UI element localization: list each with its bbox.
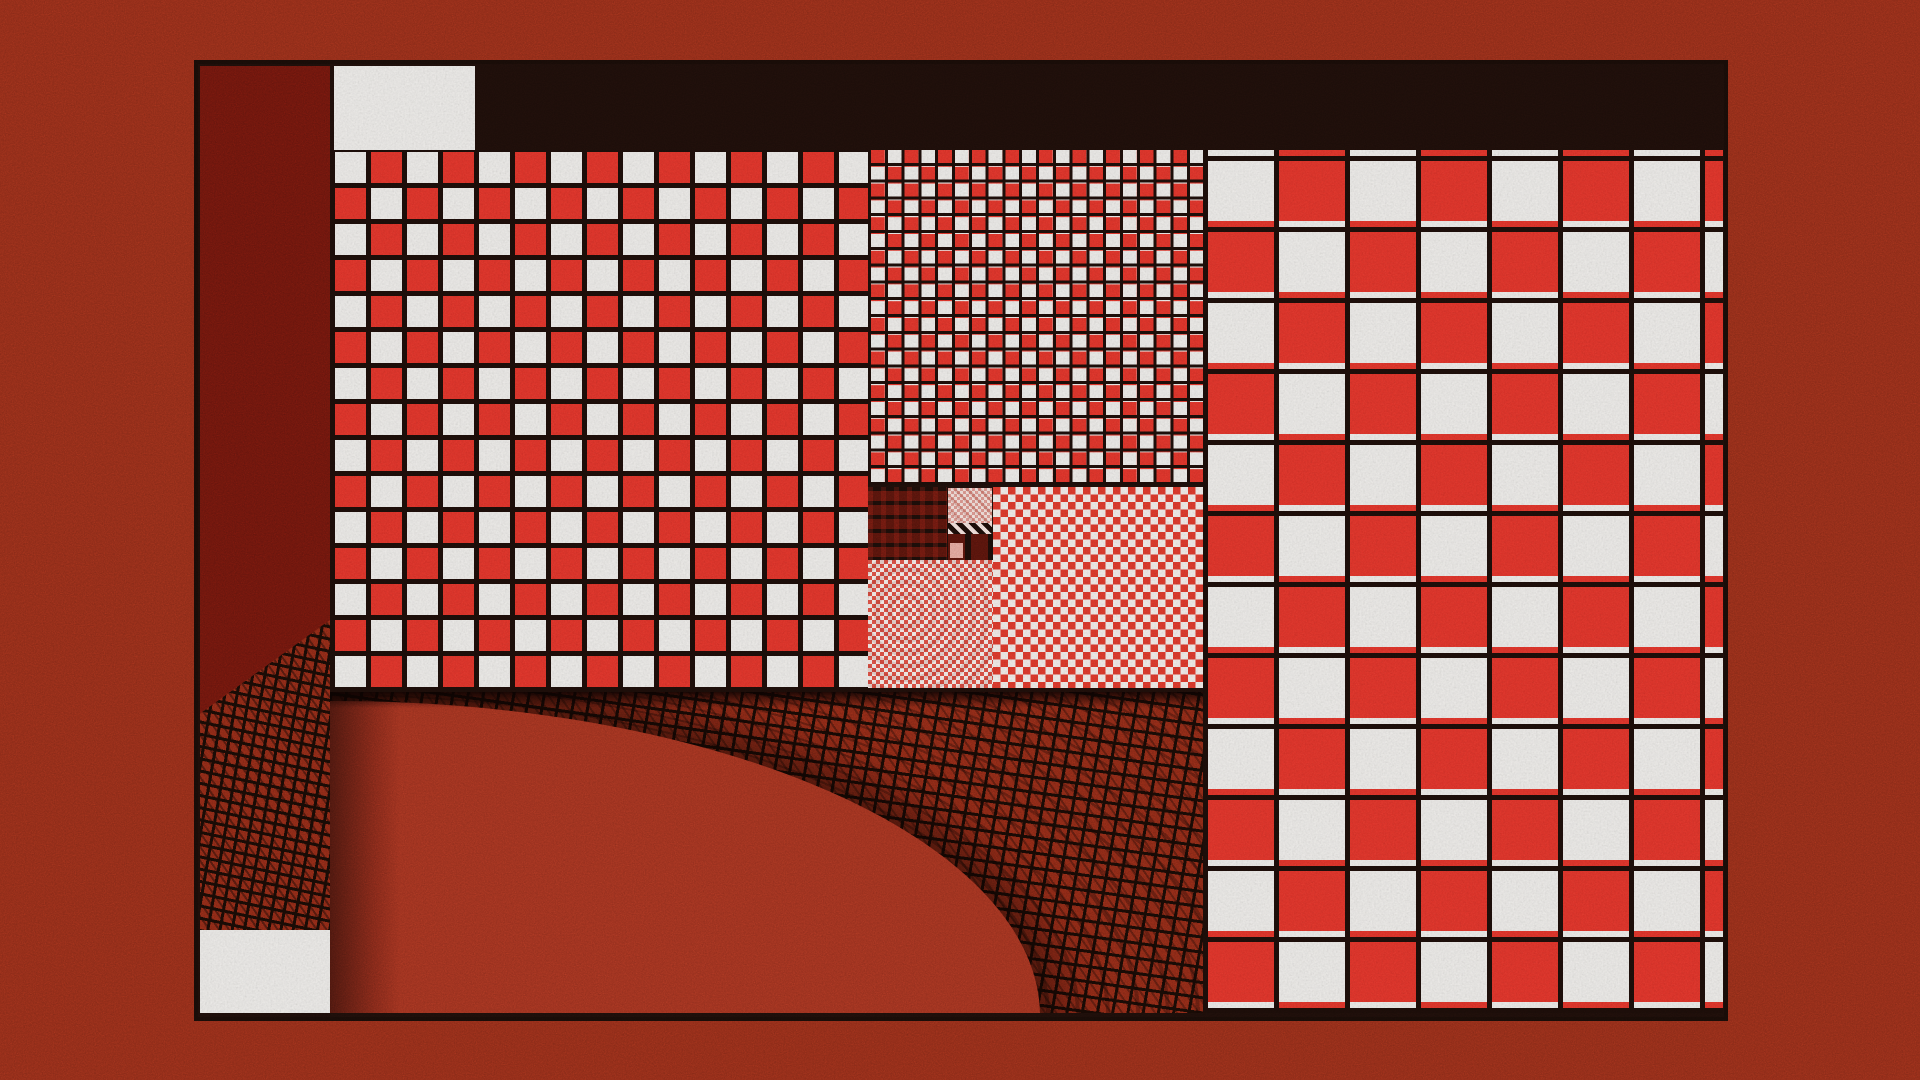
clear-red-dome xyxy=(330,701,1040,1013)
checkerboard-fine xyxy=(868,150,1203,485)
strip-mesh-wedge xyxy=(200,620,330,932)
tiny-pink-square xyxy=(950,543,963,558)
left-maroon-strip xyxy=(200,66,330,1013)
canvas-background xyxy=(0,0,1920,1080)
pink-fine-block-a xyxy=(948,488,992,523)
checkerboard-medium xyxy=(330,150,868,692)
zigzag-strip xyxy=(948,523,992,534)
moire-mesh-region xyxy=(330,692,1203,1013)
top-tile-band xyxy=(330,66,1723,150)
mesh-top-shadow xyxy=(330,692,1203,708)
band-tile-white xyxy=(334,66,438,150)
pink-fine-block-b xyxy=(868,560,993,688)
mini-checker-block-c xyxy=(993,487,1203,688)
stripes-block xyxy=(868,487,947,560)
mesh-left-shadow xyxy=(330,692,400,1013)
bottom-left-white-tile xyxy=(200,930,330,1013)
checkerboard-large xyxy=(1203,150,1723,1013)
white-tile-divider xyxy=(305,930,310,1013)
